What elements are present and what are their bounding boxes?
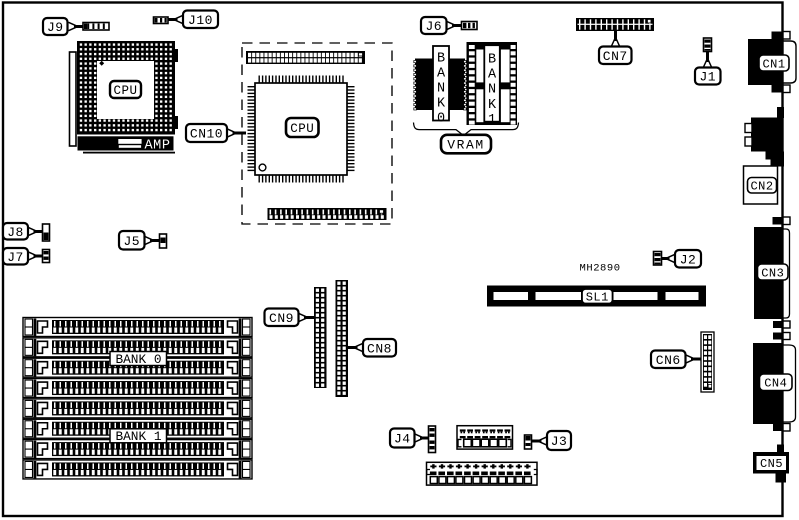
svg-text:J5: J5 <box>123 234 140 249</box>
svg-text:CPU: CPU <box>113 84 137 98</box>
svg-text:CPU: CPU <box>290 122 314 136</box>
svg-text:N: N <box>437 81 445 96</box>
svg-text:1: 1 <box>488 113 496 128</box>
svg-text:CN9: CN9 <box>269 311 294 326</box>
svg-text:SL1: SL1 <box>586 291 609 305</box>
svg-text:CN1: CN1 <box>762 57 785 71</box>
svg-text:A: A <box>437 66 446 81</box>
svg-text:MH2890: MH2890 <box>580 263 621 275</box>
svg-text:CN4: CN4 <box>764 377 787 391</box>
svg-text:K: K <box>488 98 497 113</box>
svg-text:K: K <box>437 96 446 111</box>
svg-text:AMP: AMP <box>144 139 170 154</box>
svg-text:J3: J3 <box>551 434 568 449</box>
svg-text:J1: J1 <box>699 70 716 85</box>
svg-text:BANK 0: BANK 0 <box>115 352 161 367</box>
svg-text:0: 0 <box>437 112 445 127</box>
svg-text:J9: J9 <box>47 20 64 35</box>
svg-text:CN7: CN7 <box>603 49 628 64</box>
svg-text:CN2: CN2 <box>750 180 773 194</box>
svg-text:J10: J10 <box>188 13 213 28</box>
svg-text:CN10: CN10 <box>190 127 223 142</box>
svg-text:CN6: CN6 <box>656 353 681 368</box>
svg-text:J4: J4 <box>394 432 411 447</box>
svg-text:J2: J2 <box>680 252 697 267</box>
svg-text:B: B <box>437 51 445 66</box>
svg-text:A: A <box>488 68 497 83</box>
svg-text:CN5: CN5 <box>760 457 783 471</box>
svg-text:CN8: CN8 <box>367 341 392 356</box>
svg-text:J8: J8 <box>7 225 24 240</box>
svg-text:BANK 1: BANK 1 <box>115 429 161 444</box>
svg-text:VRAM: VRAM <box>447 138 485 153</box>
svg-text:CN3: CN3 <box>761 266 784 280</box>
svg-text:J7: J7 <box>7 250 24 265</box>
svg-text:J6: J6 <box>425 19 442 34</box>
svg-text:B: B <box>488 53 496 68</box>
svg-text:N: N <box>488 83 496 98</box>
